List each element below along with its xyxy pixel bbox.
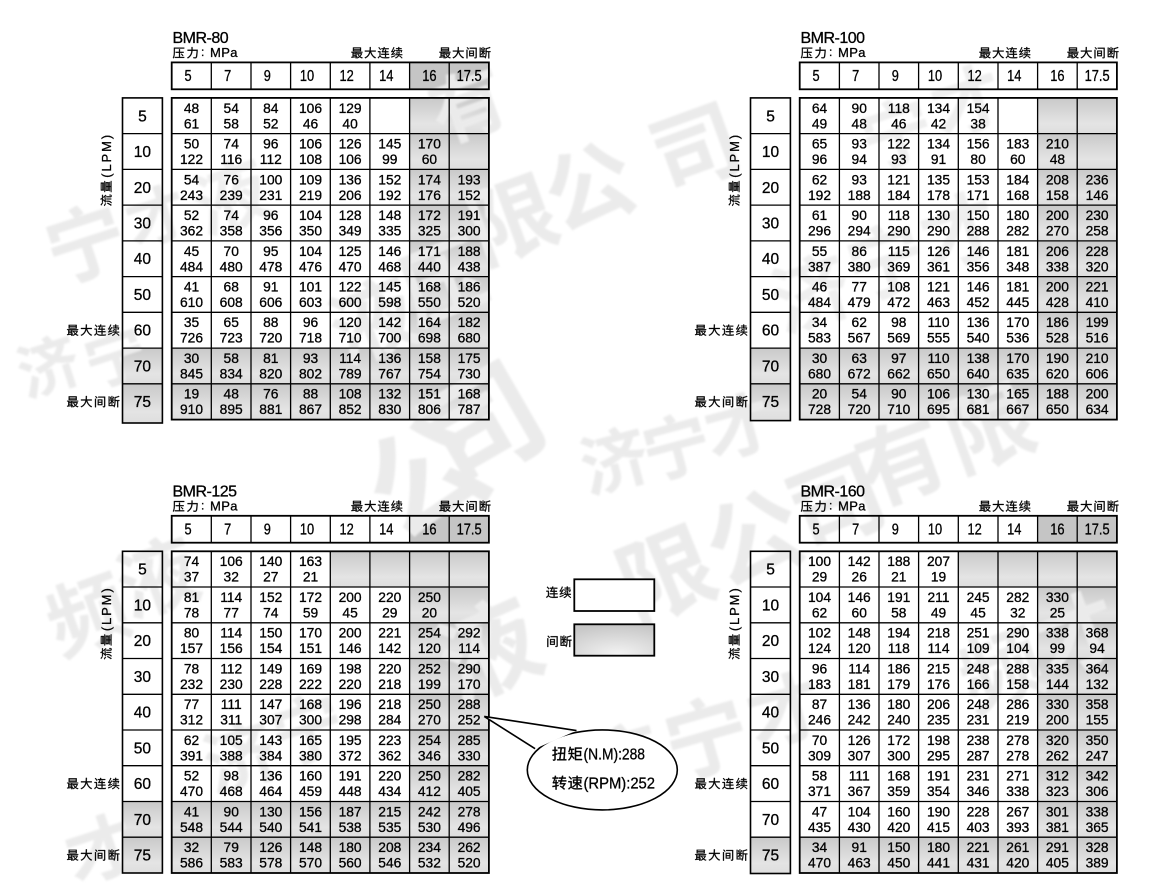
- svg-text:48: 48: [184, 101, 200, 116]
- svg-text:179: 179: [887, 677, 910, 692]
- svg-text:156: 156: [967, 137, 990, 152]
- svg-text:359: 359: [887, 784, 910, 799]
- svg-text:320: 320: [1086, 259, 1109, 274]
- svg-text:MPa: MPa: [210, 499, 238, 514]
- svg-text:50: 50: [762, 287, 780, 304]
- svg-text:150: 150: [259, 626, 282, 641]
- svg-text:16: 16: [422, 68, 436, 85]
- svg-text:61: 61: [184, 116, 199, 131]
- svg-text:191: 191: [458, 208, 481, 223]
- svg-text:20: 20: [422, 605, 438, 620]
- svg-text:282: 282: [1006, 224, 1029, 239]
- svg-text:239: 239: [220, 188, 243, 203]
- svg-text:90: 90: [852, 101, 868, 116]
- svg-text:40: 40: [134, 251, 152, 268]
- svg-text:236: 236: [1086, 172, 1109, 187]
- svg-text:267: 267: [1006, 804, 1029, 819]
- svg-text:496: 496: [458, 820, 481, 835]
- svg-text:484: 484: [808, 295, 831, 310]
- svg-text:620: 620: [1046, 367, 1069, 382]
- svg-text:181: 181: [1006, 280, 1029, 295]
- svg-text:16: 16: [1050, 68, 1064, 85]
- svg-text:MPa: MPa: [210, 45, 238, 60]
- svg-text:578: 578: [259, 856, 282, 871]
- svg-text:806: 806: [418, 402, 441, 417]
- svg-text:362: 362: [378, 748, 401, 763]
- svg-text:548: 548: [180, 820, 203, 835]
- svg-text:335: 335: [378, 224, 401, 239]
- svg-text:206: 206: [1046, 244, 1069, 259]
- svg-text:200: 200: [339, 590, 362, 605]
- svg-text:194: 194: [887, 626, 910, 641]
- svg-text:187: 187: [339, 804, 362, 819]
- svg-text:20: 20: [762, 633, 780, 650]
- svg-text:234: 234: [418, 840, 441, 855]
- svg-text:135: 135: [927, 172, 950, 187]
- svg-text:152: 152: [458, 188, 481, 203]
- svg-text:634: 634: [1086, 402, 1109, 417]
- svg-text:335: 335: [1046, 661, 1069, 676]
- svg-text:248: 248: [967, 697, 990, 712]
- svg-text:60: 60: [422, 152, 438, 167]
- svg-text:820: 820: [259, 367, 282, 382]
- svg-text:606: 606: [1086, 367, 1109, 382]
- svg-text:80: 80: [184, 626, 200, 641]
- svg-text:188: 188: [848, 188, 871, 203]
- svg-text:146: 146: [967, 244, 990, 259]
- svg-text:208: 208: [1046, 172, 1069, 187]
- svg-text:120: 120: [339, 315, 362, 330]
- svg-text:288: 288: [1006, 661, 1029, 676]
- svg-text:380: 380: [299, 748, 322, 763]
- svg-text:445: 445: [1006, 295, 1029, 310]
- svg-text:74: 74: [224, 208, 240, 223]
- svg-text:16: 16: [1050, 521, 1064, 538]
- svg-text:662: 662: [887, 367, 910, 382]
- svg-text:435: 435: [808, 820, 831, 835]
- svg-text:650: 650: [1046, 402, 1069, 417]
- svg-text:54: 54: [184, 172, 200, 187]
- svg-text:698: 698: [418, 331, 441, 346]
- svg-text:111: 111: [221, 697, 242, 712]
- svg-text:307: 307: [259, 713, 282, 728]
- svg-text:104: 104: [808, 590, 831, 605]
- svg-text:136: 136: [378, 351, 401, 366]
- svg-text:206: 206: [339, 188, 362, 203]
- svg-text:221: 221: [1086, 280, 1109, 295]
- svg-text:583: 583: [808, 331, 831, 346]
- svg-text:181: 181: [848, 677, 871, 692]
- svg-text:190: 190: [927, 804, 950, 819]
- svg-text:(LPM): (LPM): [727, 133, 742, 178]
- svg-text:140: 140: [259, 554, 282, 569]
- svg-text:450: 450: [887, 856, 910, 871]
- svg-text:146: 146: [1086, 188, 1109, 203]
- svg-text::: :: [201, 45, 204, 59]
- svg-text:10: 10: [300, 68, 314, 85]
- svg-text:191: 191: [927, 769, 950, 784]
- svg-text:5: 5: [138, 562, 147, 579]
- svg-text:62: 62: [812, 172, 827, 187]
- svg-text:182: 182: [458, 315, 481, 330]
- svg-text:199: 199: [418, 677, 441, 692]
- svg-text:720: 720: [259, 331, 282, 346]
- svg-text:106: 106: [299, 101, 322, 116]
- svg-text:88: 88: [303, 387, 319, 402]
- svg-text:361: 361: [927, 259, 950, 274]
- svg-text:472: 472: [887, 295, 910, 310]
- svg-text:78: 78: [184, 605, 200, 620]
- svg-text:230: 230: [220, 677, 243, 692]
- svg-text:221: 221: [967, 840, 990, 855]
- svg-text:362: 362: [180, 224, 203, 239]
- svg-text:220: 220: [378, 769, 401, 784]
- svg-text:108: 108: [887, 280, 910, 295]
- svg-text:440: 440: [418, 259, 441, 274]
- svg-text:190: 190: [1046, 351, 1069, 366]
- svg-text:231: 231: [967, 769, 990, 784]
- svg-text:93: 93: [303, 351, 319, 366]
- svg-text:300: 300: [458, 224, 481, 239]
- svg-text:21: 21: [891, 570, 906, 585]
- svg-text:250: 250: [418, 590, 441, 605]
- svg-text:238: 238: [967, 733, 990, 748]
- svg-text:405: 405: [458, 784, 481, 799]
- svg-text:541: 541: [299, 820, 322, 835]
- svg-text:10: 10: [134, 144, 152, 161]
- svg-text:191: 191: [339, 769, 362, 784]
- svg-text:221: 221: [378, 626, 401, 641]
- svg-text:156: 156: [220, 641, 243, 656]
- svg-text:188: 188: [1046, 387, 1069, 402]
- svg-text:881: 881: [259, 402, 282, 417]
- svg-text:199: 199: [1086, 315, 1109, 330]
- svg-text:369: 369: [887, 259, 910, 274]
- svg-text:228: 228: [259, 677, 282, 692]
- svg-text:65: 65: [224, 315, 240, 330]
- svg-text:75: 75: [762, 394, 779, 411]
- svg-text:358: 358: [220, 224, 243, 239]
- svg-text:29: 29: [382, 605, 398, 620]
- svg-text:106: 106: [299, 137, 322, 152]
- svg-text:126: 126: [848, 733, 871, 748]
- svg-text:152: 152: [259, 590, 282, 605]
- svg-text:118: 118: [888, 208, 910, 223]
- svg-text:80: 80: [970, 152, 986, 167]
- svg-text:136: 136: [967, 315, 990, 330]
- svg-text:50: 50: [134, 740, 152, 757]
- svg-text:371: 371: [808, 784, 831, 799]
- svg-text:330: 330: [458, 748, 481, 763]
- svg-text:220: 220: [339, 677, 362, 692]
- svg-text:530: 530: [418, 820, 441, 835]
- svg-text:242: 242: [848, 713, 871, 728]
- svg-text:193: 193: [458, 172, 481, 187]
- svg-text:MPa: MPa: [838, 499, 866, 514]
- svg-text:32: 32: [1010, 605, 1025, 620]
- svg-text:61: 61: [812, 208, 827, 223]
- svg-text:34: 34: [812, 315, 828, 330]
- svg-text::: :: [201, 499, 204, 513]
- svg-text:60: 60: [762, 776, 780, 793]
- svg-text:50: 50: [184, 137, 200, 152]
- svg-text:389: 389: [1086, 856, 1109, 871]
- svg-text:12: 12: [967, 521, 981, 538]
- svg-text:290: 290: [927, 224, 950, 239]
- svg-text:12: 12: [339, 521, 353, 538]
- svg-text:(RPM):252: (RPM):252: [584, 776, 656, 793]
- svg-text:20: 20: [134, 180, 152, 197]
- svg-text:168: 168: [418, 280, 441, 295]
- svg-text:121: 121: [887, 172, 910, 187]
- svg-text:412: 412: [418, 784, 441, 799]
- svg-text:261: 261: [1006, 840, 1029, 855]
- svg-text:118: 118: [888, 101, 910, 116]
- svg-text:338: 338: [1006, 784, 1029, 799]
- svg-text:41: 41: [184, 804, 199, 819]
- svg-text:17.5: 17.5: [457, 521, 482, 538]
- svg-text:29: 29: [812, 570, 828, 585]
- svg-text:77: 77: [184, 697, 199, 712]
- svg-text:10: 10: [762, 597, 780, 614]
- svg-text:171: 171: [418, 244, 441, 259]
- svg-text:142: 142: [378, 315, 401, 330]
- svg-text:116: 116: [220, 152, 242, 167]
- svg-text:328: 328: [1086, 840, 1109, 855]
- svg-text:291: 291: [1046, 840, 1069, 855]
- svg-text:142: 142: [848, 554, 871, 569]
- svg-text:186: 186: [1046, 315, 1069, 330]
- svg-text:181: 181: [1006, 244, 1029, 259]
- svg-text:94: 94: [852, 152, 868, 167]
- svg-text:583: 583: [220, 856, 243, 871]
- svg-text:132: 132: [1086, 677, 1109, 692]
- svg-text:192: 192: [808, 188, 831, 203]
- svg-text:128: 128: [339, 208, 362, 223]
- svg-text:7: 7: [852, 68, 859, 85]
- svg-text:174: 174: [418, 172, 441, 187]
- svg-text:46: 46: [891, 116, 907, 131]
- svg-text:608: 608: [220, 295, 243, 310]
- svg-text:165: 165: [1006, 387, 1029, 402]
- svg-text:88: 88: [263, 315, 279, 330]
- svg-text:138: 138: [967, 351, 990, 366]
- svg-text:250: 250: [418, 769, 441, 784]
- svg-text:86: 86: [852, 244, 868, 259]
- svg-text:49: 49: [931, 605, 947, 620]
- svg-text:415: 415: [927, 820, 950, 835]
- svg-text:172: 172: [418, 208, 441, 223]
- svg-text:301: 301: [1046, 804, 1069, 819]
- svg-text:218: 218: [378, 677, 401, 692]
- svg-text:32: 32: [224, 570, 239, 585]
- svg-text:145: 145: [378, 137, 401, 152]
- svg-text:126: 126: [927, 244, 950, 259]
- svg-text:232: 232: [180, 677, 203, 692]
- svg-text:323: 323: [1046, 784, 1069, 799]
- svg-text:90: 90: [852, 208, 868, 223]
- svg-text:560: 560: [339, 856, 362, 871]
- svg-text:38: 38: [970, 116, 986, 131]
- svg-text:70: 70: [134, 812, 152, 829]
- svg-text:55: 55: [812, 244, 828, 259]
- svg-text:48: 48: [852, 116, 868, 131]
- svg-text:84: 84: [263, 101, 279, 116]
- svg-text:787: 787: [458, 402, 481, 417]
- svg-text:176: 176: [927, 677, 950, 692]
- svg-text:87: 87: [812, 697, 827, 712]
- svg-text:145: 145: [378, 280, 401, 295]
- svg-text:215: 215: [927, 661, 950, 676]
- svg-text:54: 54: [224, 101, 240, 116]
- svg-text:40: 40: [342, 116, 358, 131]
- svg-text:164: 164: [418, 315, 441, 330]
- svg-text:45: 45: [970, 605, 986, 620]
- svg-text:284: 284: [378, 713, 401, 728]
- svg-text:600: 600: [339, 295, 362, 310]
- svg-text:434: 434: [378, 784, 401, 799]
- svg-text:106: 106: [927, 387, 950, 402]
- svg-text:380: 380: [848, 259, 871, 274]
- svg-text:114: 114: [220, 626, 242, 641]
- svg-text:110: 110: [928, 351, 950, 366]
- svg-text:105: 105: [220, 733, 243, 748]
- svg-text:349: 349: [339, 224, 362, 239]
- svg-text:298: 298: [339, 713, 362, 728]
- svg-text:148: 148: [378, 208, 401, 223]
- svg-text:681: 681: [967, 402, 990, 417]
- svg-text:610: 610: [180, 295, 203, 310]
- svg-text:62: 62: [852, 315, 867, 330]
- svg-text:125: 125: [339, 244, 362, 259]
- svg-text:70: 70: [762, 359, 780, 376]
- svg-text:270: 270: [418, 713, 441, 728]
- svg-text:14: 14: [379, 68, 394, 85]
- svg-text:122: 122: [180, 152, 203, 167]
- svg-text:672: 672: [848, 367, 871, 382]
- svg-text:170: 170: [458, 677, 481, 692]
- svg-text:143: 143: [259, 733, 282, 748]
- svg-text:405: 405: [1046, 856, 1069, 871]
- svg-text:124: 124: [808, 641, 831, 656]
- svg-text:170: 170: [1006, 351, 1029, 366]
- svg-text:476: 476: [299, 259, 322, 274]
- svg-text:470: 470: [180, 784, 203, 799]
- svg-text:158: 158: [418, 351, 441, 366]
- svg-text:10: 10: [762, 144, 780, 161]
- svg-text:100: 100: [259, 172, 282, 187]
- svg-text:789: 789: [339, 367, 362, 382]
- svg-text:74: 74: [184, 554, 200, 569]
- svg-text:14: 14: [1007, 68, 1022, 85]
- svg-text:720: 720: [848, 402, 871, 417]
- svg-text:58: 58: [224, 116, 240, 131]
- svg-text:480: 480: [220, 259, 243, 274]
- svg-text:20: 20: [762, 180, 780, 197]
- svg-text:528: 528: [1046, 331, 1069, 346]
- svg-text:294: 294: [848, 224, 871, 239]
- svg-text:60: 60: [134, 323, 152, 340]
- svg-text:166: 166: [967, 677, 990, 692]
- svg-text:106: 106: [339, 152, 362, 167]
- svg-text:384: 384: [259, 748, 282, 763]
- svg-text:300: 300: [887, 748, 910, 763]
- svg-text:278: 278: [1006, 748, 1029, 763]
- svg-text:42: 42: [931, 116, 946, 131]
- svg-text:48: 48: [1050, 152, 1066, 167]
- svg-text:144: 144: [1046, 677, 1069, 692]
- svg-text:170: 170: [418, 137, 441, 152]
- svg-text:35: 35: [184, 315, 200, 330]
- svg-text:175: 175: [458, 351, 481, 366]
- svg-text:104: 104: [299, 244, 322, 259]
- svg-text:251: 251: [967, 626, 990, 641]
- svg-text:90: 90: [224, 804, 240, 819]
- svg-text:130: 130: [967, 387, 990, 402]
- svg-text:282: 282: [1006, 590, 1029, 605]
- svg-text:338: 338: [1046, 259, 1069, 274]
- svg-text:680: 680: [458, 331, 481, 346]
- svg-text:470: 470: [339, 259, 362, 274]
- svg-text:603: 603: [299, 295, 322, 310]
- svg-text:75: 75: [762, 848, 779, 865]
- svg-text:330: 330: [1046, 590, 1069, 605]
- svg-text:81: 81: [263, 351, 278, 366]
- svg-text:77: 77: [224, 605, 239, 620]
- svg-text:102: 102: [808, 626, 831, 641]
- svg-text:74: 74: [224, 137, 240, 152]
- svg-text:350: 350: [299, 224, 322, 239]
- svg-text:114: 114: [848, 661, 870, 676]
- svg-text:98: 98: [224, 769, 240, 784]
- svg-text:325: 325: [418, 224, 441, 239]
- svg-text:188: 188: [458, 244, 481, 259]
- svg-text:30: 30: [184, 351, 200, 366]
- svg-text:388: 388: [220, 748, 243, 763]
- svg-text:278: 278: [458, 804, 481, 819]
- svg-text:32: 32: [184, 840, 199, 855]
- svg-text:222: 222: [299, 677, 322, 692]
- svg-text:211: 211: [928, 590, 950, 605]
- svg-text:200: 200: [1046, 208, 1069, 223]
- svg-text:10: 10: [928, 68, 942, 85]
- svg-text:25: 25: [1050, 605, 1066, 620]
- svg-text:151: 151: [299, 641, 322, 656]
- svg-text:96: 96: [263, 137, 279, 152]
- svg-text:448: 448: [339, 784, 362, 799]
- svg-text:10: 10: [300, 521, 314, 538]
- svg-text:441: 441: [927, 856, 950, 871]
- svg-text:62: 62: [184, 733, 199, 748]
- svg-text:122: 122: [887, 137, 910, 152]
- svg-text:60: 60: [852, 605, 868, 620]
- svg-text:160: 160: [299, 769, 322, 784]
- svg-text:296: 296: [808, 224, 831, 239]
- svg-text:130: 130: [259, 804, 282, 819]
- svg-text:354: 354: [927, 784, 950, 799]
- svg-text:420: 420: [1006, 856, 1029, 871]
- svg-text:186: 186: [458, 280, 481, 295]
- svg-text:767: 767: [378, 367, 401, 382]
- svg-text:136: 136: [259, 769, 282, 784]
- svg-text:546: 546: [378, 856, 401, 871]
- svg-text:271: 271: [1006, 769, 1029, 784]
- svg-text:99: 99: [1050, 641, 1066, 656]
- svg-text:150: 150: [967, 208, 990, 223]
- svg-text:158: 158: [1006, 677, 1029, 692]
- svg-text:210: 210: [1086, 351, 1109, 366]
- svg-text:109: 109: [967, 641, 990, 656]
